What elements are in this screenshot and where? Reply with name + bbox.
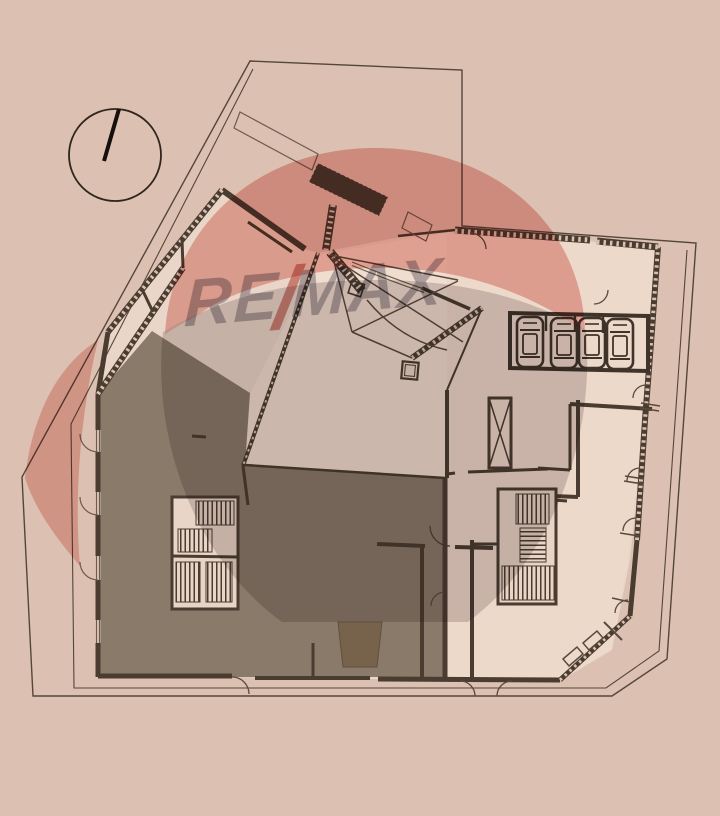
remax-text-re: RE: [183, 258, 281, 341]
floor-plan-svg: [0, 0, 720, 816]
floor-plan-screenshot: RE/MAX: [0, 0, 720, 816]
remax-text-max: MAX: [290, 243, 445, 331]
balloon-basket: [338, 622, 382, 667]
